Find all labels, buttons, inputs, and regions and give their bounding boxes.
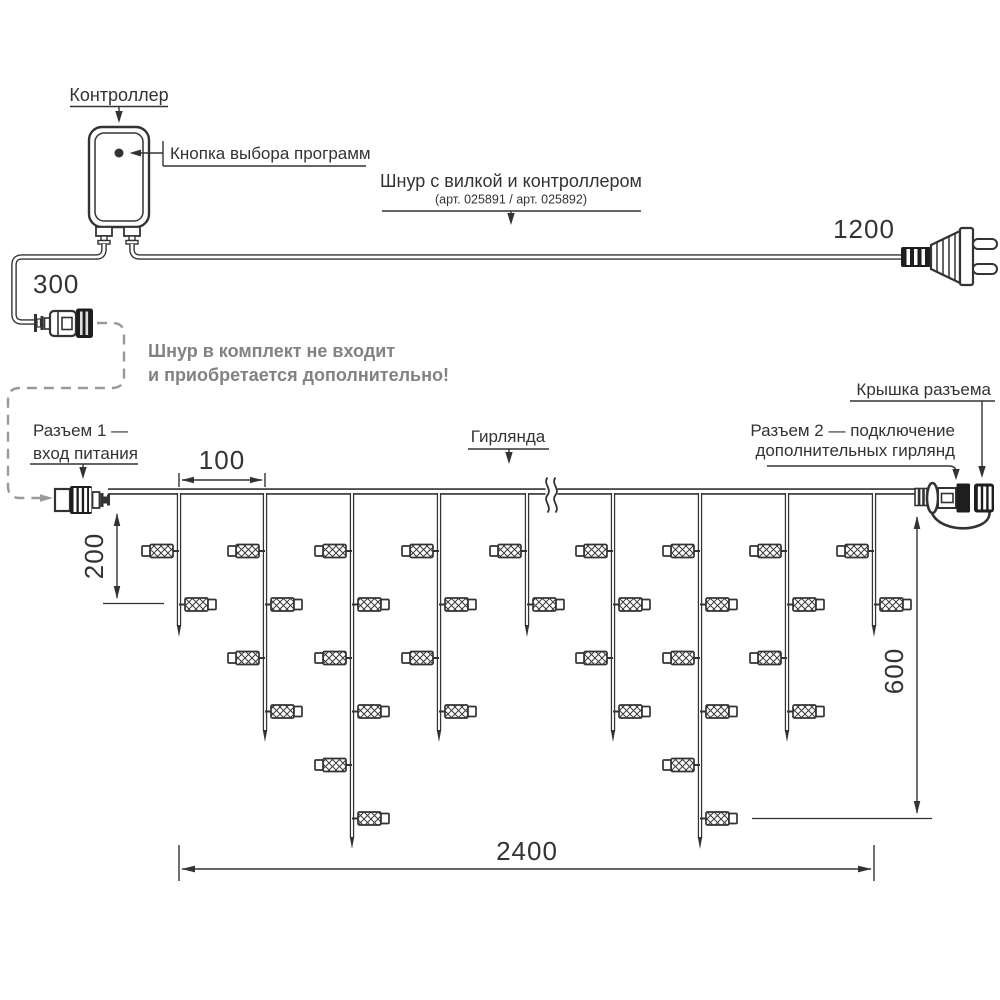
bulb	[402, 652, 439, 665]
cap-cord-loop	[931, 510, 989, 528]
connector-2	[915, 483, 994, 528]
icicle-drop	[837, 493, 911, 637]
connector-1	[55, 486, 110, 514]
bulb	[315, 759, 352, 772]
connector1-label-line1: Разъем 1 —	[33, 421, 128, 440]
bulb	[663, 545, 700, 558]
bulb	[352, 812, 389, 825]
bulb	[750, 652, 787, 665]
connector2-label-line2: дополнительных гирлянд	[755, 441, 955, 460]
icicle-drop	[490, 493, 564, 637]
bulb	[787, 598, 824, 611]
bulb	[663, 652, 700, 665]
controller-stub-left	[96, 227, 112, 244]
bulb	[352, 598, 389, 611]
bulb	[527, 598, 564, 611]
bulb	[439, 598, 476, 611]
plug-cord-1200	[132, 244, 901, 257]
bulb	[315, 652, 352, 665]
bulb	[750, 545, 787, 558]
garland-label: Гирлянда	[471, 427, 546, 446]
icicle-drop	[750, 493, 824, 742]
connector1-label-line2: вход питания	[33, 444, 138, 463]
controller-box	[89, 127, 149, 244]
bulb	[700, 812, 737, 825]
icicle-drop	[663, 493, 737, 849]
bulb	[265, 598, 302, 611]
bulb	[837, 545, 874, 558]
power-plug-icon	[901, 228, 997, 285]
dim-300-value: 300	[33, 269, 79, 299]
leader-connector1	[30, 464, 138, 479]
bulb	[613, 705, 650, 718]
dim-600-value: 600	[879, 648, 909, 694]
bulb	[874, 598, 911, 611]
dim-200-value: 200	[79, 533, 109, 579]
bulb	[700, 598, 737, 611]
icicle-drop	[576, 493, 650, 742]
bulb	[663, 759, 700, 772]
bulb	[490, 545, 527, 558]
bulb	[142, 545, 179, 558]
leader-controller	[70, 107, 168, 124]
dim-1200-value: 1200	[833, 214, 895, 244]
bulb	[439, 705, 476, 718]
icicle-drop	[402, 493, 476, 742]
note-line1: Шнур в комплект не входит	[148, 341, 395, 361]
garland-drops	[142, 493, 911, 849]
dim-2400-value: 2400	[496, 836, 558, 866]
wire-break-symbol	[546, 478, 558, 513]
program-button-label: Кнопка выбора программ	[170, 144, 371, 163]
bulb	[315, 545, 352, 558]
leader-connector2	[767, 466, 960, 480]
bulb	[576, 545, 613, 558]
bulb	[700, 705, 737, 718]
bulb	[179, 598, 216, 611]
cord-title: Шнур с вилкой и контроллером	[380, 171, 642, 191]
bulb	[352, 705, 389, 718]
cap-label: Крышка разъема	[856, 380, 991, 399]
icicle-drop	[142, 493, 216, 637]
bulb	[576, 652, 613, 665]
bulb	[265, 705, 302, 718]
bulb	[228, 545, 265, 558]
garland-diagram: Контроллер Кнопка выбора программ Шнур с…	[0, 0, 1000, 1000]
dim-100-value: 100	[199, 445, 245, 475]
icicle-drop	[315, 493, 389, 849]
diagram-page: Контроллер Кнопка выбора программ Шнур с…	[0, 0, 1000, 1000]
leader-garland	[468, 449, 549, 464]
controller-stub-right	[124, 227, 140, 244]
connector-300	[34, 309, 93, 339]
controller-label: Контроллер	[69, 85, 168, 105]
bulb	[402, 545, 439, 558]
bulb	[787, 705, 824, 718]
bulb	[613, 598, 650, 611]
dashed-route	[8, 323, 124, 502]
cord-art-numbers: (арт. 025891 / арт. 025892)	[435, 193, 587, 207]
bulb	[228, 652, 265, 665]
dim-100	[179, 473, 265, 487]
icicle-drop	[228, 493, 302, 742]
connector2-label-line1: Разъем 2 — подключение	[750, 421, 955, 440]
note-line2: и приобретается дополнительно!	[148, 365, 449, 385]
program-button-dot[interactable]	[115, 149, 124, 158]
leader-cord	[382, 211, 641, 225]
dashed-route-arrow	[40, 494, 53, 501]
